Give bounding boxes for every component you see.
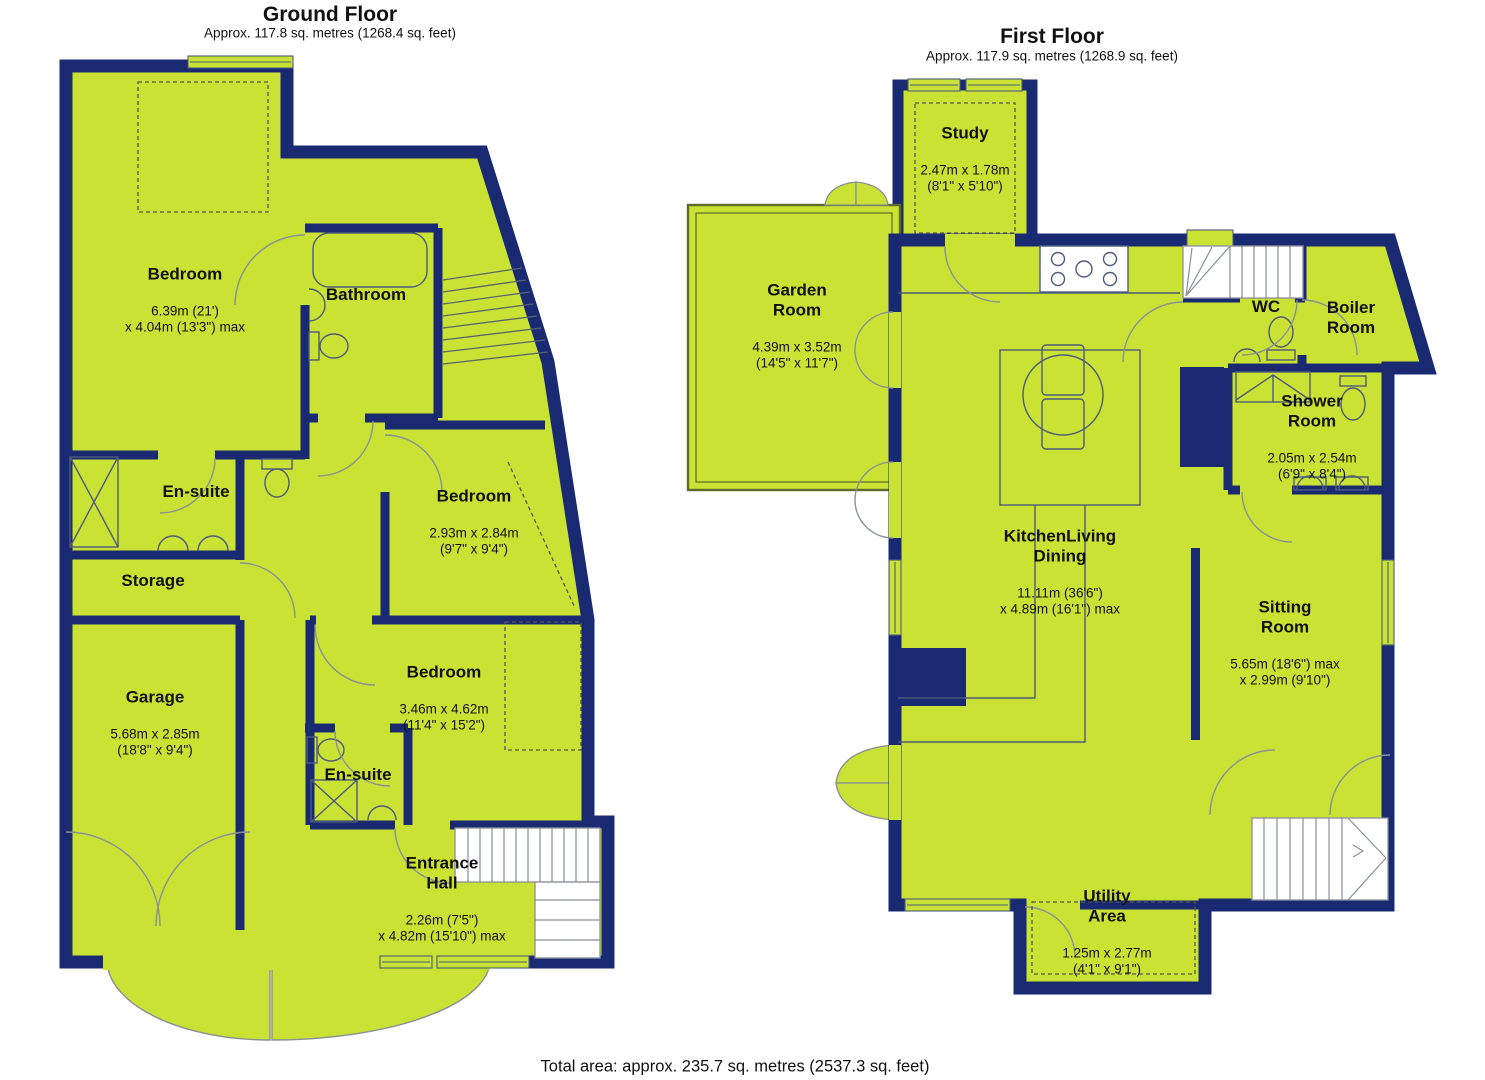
total-area-text: Total area: approx. 235.7 sq. metres (25… — [541, 1058, 930, 1077]
ground-floor-subtitle: Approx. 117.8 sq. metres (1268.4 sq. fee… — [204, 26, 456, 41]
room-name: Sitting Room — [1230, 598, 1339, 638]
room-name: Bathroom — [326, 285, 406, 305]
room-label-bedroom-3: Bedroom 3.46m x 4.62m (11'4" x 15'2") — [399, 644, 488, 753]
first-floor-subtitle: Approx. 117.9 sq. metres (1268.9 sq. fee… — [926, 49, 1178, 64]
sitting-room-divider-wall — [1191, 548, 1200, 740]
room-name: Garage — [110, 688, 199, 708]
room-name: WC — [1252, 297, 1280, 317]
room-label-en-suite-1: En-suite — [162, 463, 229, 521]
room-name: Shower Room — [1267, 392, 1356, 432]
first-staircase-bottom — [1252, 818, 1388, 900]
room-name: Study — [920, 124, 1009, 144]
shower-void-block — [1180, 367, 1224, 467]
room-label-wc: WC — [1252, 278, 1280, 336]
floorplan-drawing — [0, 0, 1485, 1080]
room-name: Entrance Hall — [378, 854, 505, 894]
hob — [1040, 246, 1128, 292]
room-label-study: Study 2.47m x 1.78m (8'1" x 5'10") — [920, 105, 1009, 214]
room-name: Bedroom — [429, 487, 518, 507]
room-name: KitchenLiving Dining — [1000, 527, 1120, 567]
room-label-bedroom-2: Bedroom 2.93m x 2.84m (9'7" x 9'4") — [429, 468, 518, 577]
room-name: En-suite — [162, 482, 229, 502]
room-dims: 2.47m x 1.78m (8'1" x 5'10") — [920, 163, 1009, 195]
room-dims: 11.11m (36'6") x 4.89m (16'1") max — [1000, 586, 1120, 618]
room-name: Garden Room — [752, 281, 841, 321]
room-dims: 5.68m x 2.85m (18'8" x 9'4") — [110, 727, 199, 759]
room-label-entrance-hall: Entrance Hall 2.26m (7'5") x 4.82m (15'1… — [378, 835, 505, 964]
ground-floor-plan — [66, 56, 608, 1040]
room-label-storage: Storage — [121, 552, 184, 610]
room-dims: 5.65m (18'6") max x 2.99m (9'10") — [1230, 657, 1339, 689]
room-label-utility-area: Utility Area 1.25m x 2.77m (4'1" x 9'1") — [1062, 868, 1151, 997]
room-label-kitchen-living-dining: KitchenLiving Dining 11.11m (36'6") x 4.… — [1000, 508, 1120, 637]
room-name: Storage — [121, 571, 184, 591]
room-label-garden-room: Garden Room 4.39m x 3.52m (14'5" x 11'7"… — [752, 262, 841, 391]
garage-door-swing — [107, 960, 490, 1040]
room-label-en-suite-2: En-suite — [324, 746, 391, 804]
room-label-bathroom: Bathroom — [326, 266, 406, 324]
room-label-shower-room: Shower Room 2.05m x 2.54m (6'9" x 8'4") — [1267, 373, 1356, 502]
room-label-boiler-room: Boiler Room — [1327, 279, 1375, 357]
room-dims: 4.39m x 3.52m (14'5" x 11'7") — [752, 340, 841, 372]
first-floor-title: First Floor — [1000, 25, 1104, 49]
room-name: En-suite — [324, 765, 391, 785]
room-dims: 3.46m x 4.62m (11'4" x 15'2") — [399, 702, 488, 734]
room-label-garage: Garage 5.68m x 2.85m (18'8" x 9'4") — [110, 669, 199, 778]
room-name: Bedroom — [125, 265, 245, 285]
room-dims: 1.25m x 2.77m (4'1" x 9'1") — [1062, 946, 1151, 978]
room-name: Bedroom — [399, 663, 488, 683]
room-dims: 6.39m (21') x 4.04m (13'3") max — [125, 304, 245, 336]
room-name: Boiler Room — [1327, 298, 1375, 338]
floorplan-page: Ground Floor Approx. 117.8 sq. metres (1… — [0, 0, 1485, 1080]
room-label-sitting-room: Sitting Room 5.65m (18'6") max x 2.99m (… — [1230, 579, 1339, 708]
ground-floor-title: Ground Floor — [263, 3, 397, 27]
room-label-bedroom-1: Bedroom 6.39m (21') x 4.04m (13'3") max — [125, 246, 245, 355]
room-name: Utility Area — [1062, 887, 1151, 927]
room-dims: 2.26m (7'5") x 4.82m (15'10") max — [378, 913, 505, 945]
room-dims: 2.05m x 2.54m (6'9" x 8'4") — [1267, 451, 1356, 483]
room-dims: 2.93m x 2.84m (9'7" x 9'4") — [429, 526, 518, 558]
